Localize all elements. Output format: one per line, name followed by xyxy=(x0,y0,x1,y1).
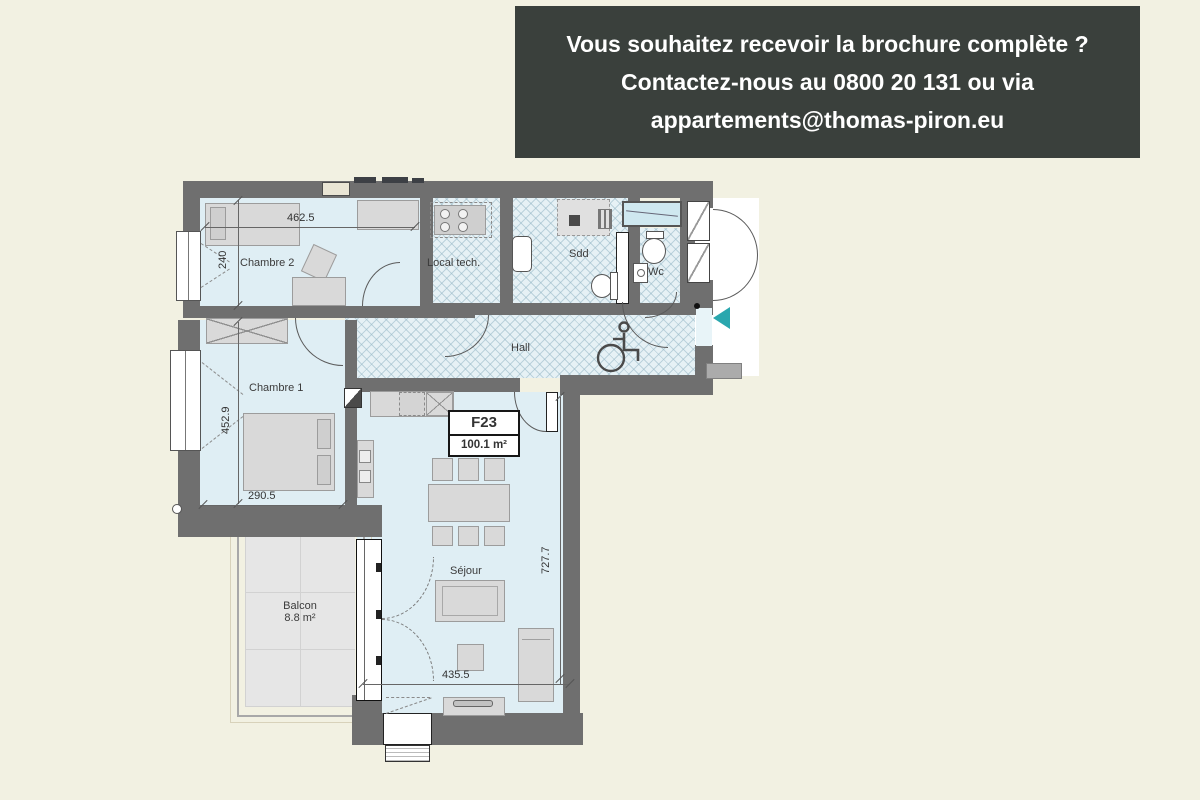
dining-chair xyxy=(432,458,453,481)
banner-line-1: Vous souhaitez recevoir la brochure comp… xyxy=(566,26,1088,62)
unit-area: 100.1 m² xyxy=(450,436,518,455)
window-wc xyxy=(622,201,682,227)
shower-drain xyxy=(569,215,580,226)
entrance-step xyxy=(706,363,742,379)
pillow xyxy=(317,455,331,485)
sofa xyxy=(435,580,505,622)
radiator xyxy=(598,209,612,229)
dishwasher xyxy=(399,392,425,416)
room-label-chambre1: Chambre 1 xyxy=(249,382,303,394)
wall-artifact xyxy=(354,177,376,183)
banner-line-3: appartements@thomas-piron.eu xyxy=(651,102,1004,138)
contact-banner: Vous souhaitez recevoir la brochure comp… xyxy=(515,6,1140,158)
dimension-label: 240 xyxy=(217,235,229,269)
dining-chair xyxy=(484,526,505,546)
room-label-sdd: Sdd xyxy=(569,248,589,260)
kitchen-unit xyxy=(357,440,374,498)
room-label-localtech: Local tech. xyxy=(427,257,480,269)
pillow xyxy=(317,419,331,449)
wc-sink xyxy=(633,263,648,283)
exterior-door-leaf xyxy=(687,201,710,241)
page: Vous souhaitez recevoir la brochure comp… xyxy=(0,0,1200,800)
wall xyxy=(183,181,713,198)
dining-chair xyxy=(484,458,505,481)
unit-code: F23 xyxy=(450,412,518,436)
wall xyxy=(178,505,382,537)
sink-basin xyxy=(359,450,371,463)
door-hinge-mark xyxy=(376,610,381,619)
wheelchair-icon xyxy=(594,320,642,376)
dimension-label: 290.5 xyxy=(248,490,276,502)
wall xyxy=(345,378,520,392)
door-hinge-mark xyxy=(376,656,381,665)
wall-artifact xyxy=(412,178,424,183)
toilet-tank xyxy=(610,272,618,300)
wardrobe-chambre1 xyxy=(206,318,288,344)
room-label-sejour: Séjour xyxy=(450,565,482,577)
wall-artifact xyxy=(382,177,408,183)
window-chambre1 xyxy=(170,350,201,451)
burner xyxy=(440,209,450,219)
washbasin xyxy=(512,236,532,272)
burner xyxy=(458,209,468,219)
window-chambre2 xyxy=(176,231,201,301)
dimension-label: 727.7 xyxy=(540,530,552,574)
dining-table xyxy=(428,484,510,522)
room-label-hall: Hall xyxy=(511,342,530,354)
dimension-line xyxy=(238,322,239,504)
room-label-balcon: Balcon 8.8 m² xyxy=(265,600,335,624)
window-sejour xyxy=(383,713,432,745)
desk-chambre2 xyxy=(292,277,346,306)
dimension-line xyxy=(203,505,343,506)
dimension-line xyxy=(560,397,561,684)
room-label-wc: Wc xyxy=(648,266,664,278)
window-sill xyxy=(385,745,430,762)
tv xyxy=(453,700,493,707)
sink-basin xyxy=(359,470,371,483)
coffee-table xyxy=(457,644,484,671)
wall-end-detail xyxy=(172,504,182,514)
wardrobe-chambre2 xyxy=(357,200,419,230)
dimension-label: 462.5 xyxy=(287,212,315,224)
unit-label-box: F23 100.1 m² xyxy=(448,410,520,457)
dining-chair xyxy=(458,458,479,481)
dimension-line xyxy=(363,684,570,685)
dining-chair xyxy=(432,526,453,546)
entrance-door-opening xyxy=(696,308,712,346)
banner-line-2: Contactez-nous au 0800 20 131 ou via xyxy=(621,64,1034,100)
room-label-chambre2: Chambre 2 xyxy=(240,257,294,269)
dimension-line xyxy=(205,227,415,228)
dimension-label: 435.5 xyxy=(442,669,470,681)
wall xyxy=(560,375,713,395)
exterior-door-leaf xyxy=(687,243,710,283)
burner xyxy=(440,222,450,232)
wall xyxy=(345,320,357,505)
entrance-arrow-icon xyxy=(713,307,730,329)
duct-symbol xyxy=(344,388,362,408)
window-swing-line xyxy=(386,697,430,698)
dining-chair xyxy=(458,526,479,546)
toilet-wc xyxy=(642,238,666,264)
armchair xyxy=(518,628,554,702)
wall-recess xyxy=(322,182,350,196)
dimension-line xyxy=(238,200,239,306)
door-hinge-dot xyxy=(694,303,700,309)
door-hinge-mark xyxy=(376,563,381,572)
dimension-label: 452.9 xyxy=(220,390,232,434)
burner xyxy=(458,222,468,232)
